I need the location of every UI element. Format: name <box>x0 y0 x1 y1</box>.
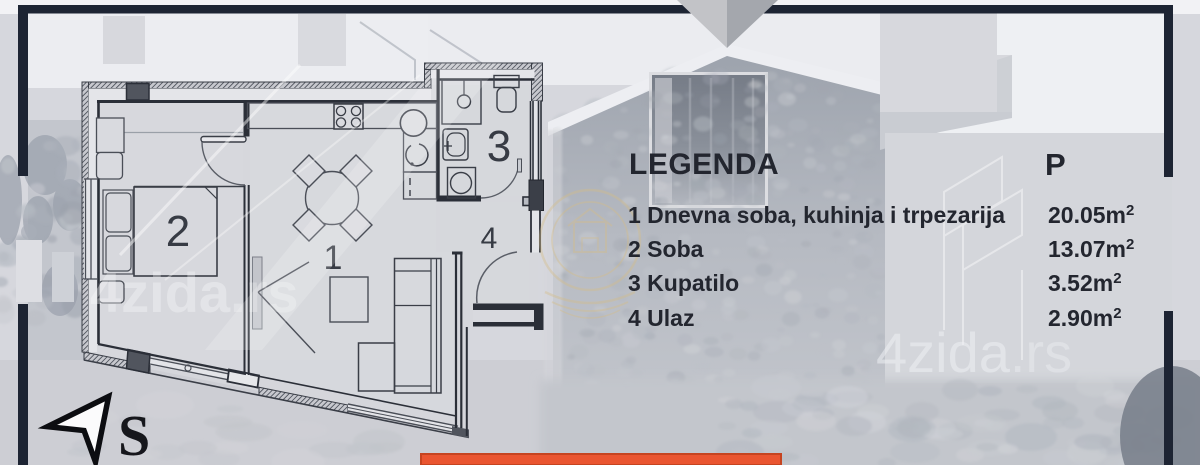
svg-text:3: 3 <box>487 122 511 171</box>
svg-text:2: 2 <box>166 207 190 256</box>
svg-text:2 Soba: 2 Soba <box>628 236 704 262</box>
svg-text:4 Ulaz: 4 Ulaz <box>628 305 694 331</box>
svg-text:13.07m2: 13.07m2 <box>1048 236 1134 262</box>
svg-text:P: P <box>1045 147 1066 182</box>
svg-text:4zida.rs: 4zida.rs <box>90 261 299 324</box>
svg-text:3 Kupatilo: 3 Kupatilo <box>628 270 739 296</box>
svg-text:20.05m2: 20.05m2 <box>1048 202 1134 228</box>
svg-text:3.52m2: 3.52m2 <box>1048 270 1122 296</box>
svg-text:4zida.rs: 4zida.rs <box>876 321 1072 384</box>
svg-text:S: S <box>118 403 150 465</box>
svg-text:LEGENDA: LEGENDA <box>629 148 779 181</box>
svg-text:4: 4 <box>481 222 498 255</box>
svg-text:1 Dnevna soba, kuhinja i trpez: 1 Dnevna soba, kuhinja i trpezarija <box>628 202 1005 228</box>
